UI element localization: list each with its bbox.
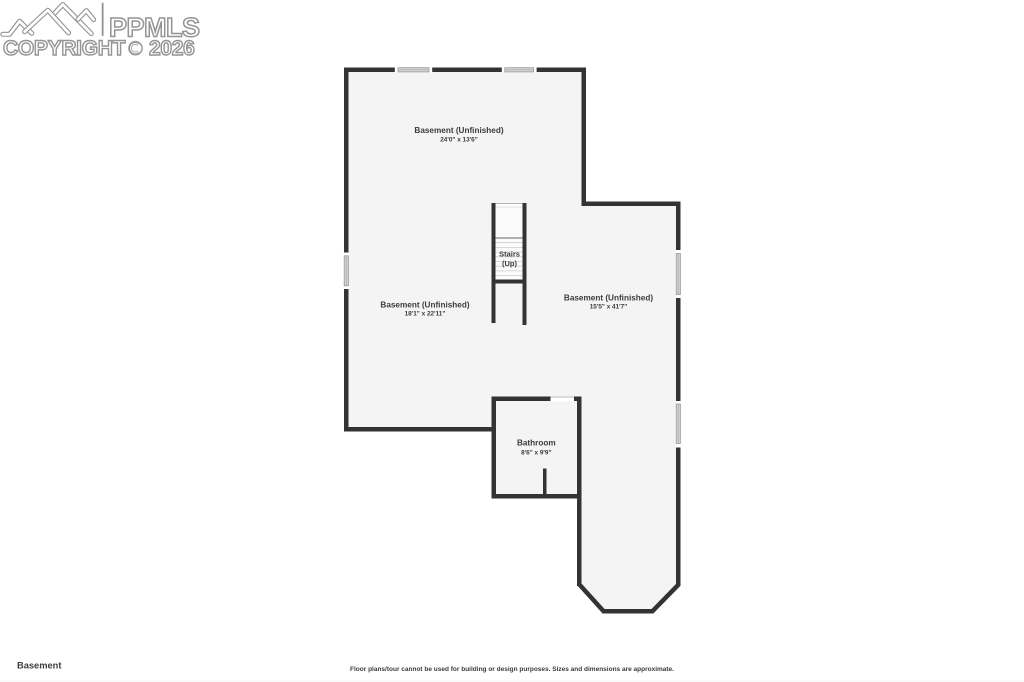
svg-text:Stairs: Stairs	[499, 250, 520, 259]
svg-text:(Up): (Up)	[502, 259, 517, 268]
svg-text:Bathroom: Bathroom	[517, 439, 556, 448]
svg-text:Basement (Unfinished): Basement (Unfinished)	[380, 301, 469, 310]
svg-text:COPYRIGHT: COPYRIGHT	[3, 37, 126, 60]
svg-text:Basement: Basement	[17, 660, 61, 670]
svg-text:24'0" x 13'6": 24'0" x 13'6"	[440, 137, 478, 144]
svg-text:Basement (Unfinished): Basement (Unfinished)	[564, 294, 653, 303]
svg-text:18'1" x 22'11": 18'1" x 22'11"	[405, 311, 446, 318]
svg-text:Basement (Unfinished): Basement (Unfinished)	[414, 126, 503, 135]
svg-text:Floor plans/tour cannot be use: Floor plans/tour cannot be used for buil…	[350, 666, 674, 673]
svg-text:8'6" x 9'9": 8'6" x 9'9"	[521, 449, 551, 456]
svg-text:15'5" x 41'7": 15'5" x 41'7"	[590, 304, 628, 311]
svg-text:2026: 2026	[149, 37, 195, 60]
